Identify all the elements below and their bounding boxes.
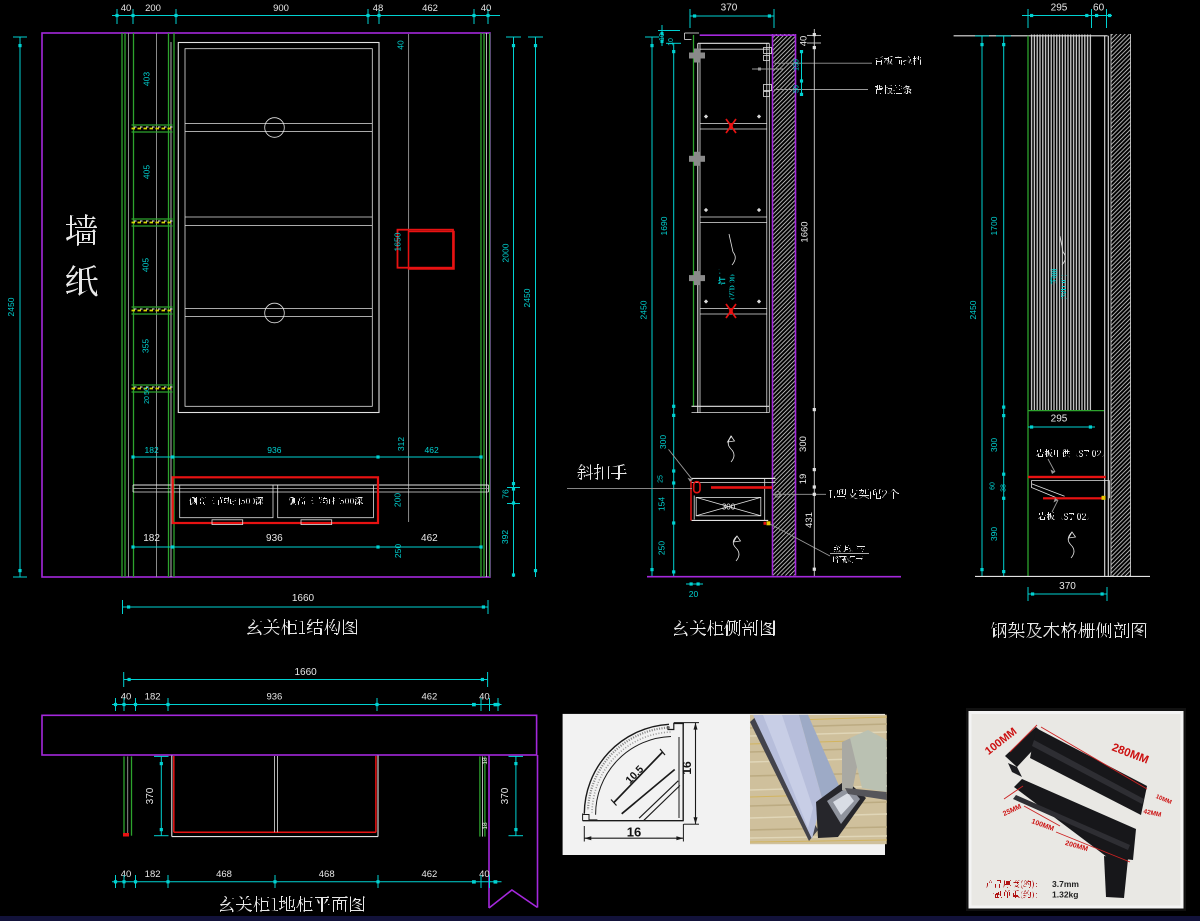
svg-text:370: 370 xyxy=(1059,581,1076,592)
svg-text:936: 936 xyxy=(266,692,282,703)
svg-text:300: 300 xyxy=(722,503,736,512)
svg-text:468: 468 xyxy=(216,869,232,880)
svg-text:370: 370 xyxy=(145,787,156,804)
svg-text:1660: 1660 xyxy=(800,221,811,242)
svg-text:150: 150 xyxy=(794,59,801,71)
svg-text:295: 295 xyxy=(1051,414,1068,425)
svg-text:300: 300 xyxy=(658,435,668,449)
svg-text:370: 370 xyxy=(721,3,738,14)
svg-text:60: 60 xyxy=(990,482,997,490)
svg-text:2450: 2450 xyxy=(639,300,649,319)
svg-text:462: 462 xyxy=(421,533,438,544)
svg-text:462: 462 xyxy=(421,692,437,703)
svg-text:40: 40 xyxy=(121,869,132,880)
svg-text:300: 300 xyxy=(989,438,999,452)
svg-text:48: 48 xyxy=(373,3,384,14)
svg-text:462: 462 xyxy=(421,869,437,880)
svg-text:312: 312 xyxy=(396,437,406,451)
svg-text:50: 50 xyxy=(144,387,151,395)
svg-text:60: 60 xyxy=(1093,3,1105,14)
svg-text:295: 295 xyxy=(1051,3,1068,14)
svg-text:462: 462 xyxy=(422,3,438,14)
svg-text:182: 182 xyxy=(145,445,159,455)
svg-text:2450: 2450 xyxy=(6,297,16,316)
svg-text:3.7mm: 3.7mm xyxy=(1052,879,1079,889)
svg-text:40: 40 xyxy=(481,3,492,14)
svg-text:390: 390 xyxy=(989,527,999,541)
svg-text:200: 200 xyxy=(393,493,403,507)
svg-text:1660: 1660 xyxy=(294,667,317,678)
svg-text:1650: 1650 xyxy=(393,232,403,251)
svg-text:38: 38 xyxy=(1001,484,1008,492)
svg-text:154: 154 xyxy=(657,497,667,511)
svg-text:16: 16 xyxy=(627,825,641,840)
svg-text:182: 182 xyxy=(145,692,161,703)
svg-text:900: 900 xyxy=(273,3,289,14)
svg-text:1660: 1660 xyxy=(292,593,315,604)
svg-text:392: 392 xyxy=(500,530,510,544)
svg-text:200: 200 xyxy=(145,3,161,14)
svg-text:250: 250 xyxy=(393,544,403,558)
svg-text:18: 18 xyxy=(482,822,489,830)
svg-text:1.32kg: 1.32kg xyxy=(1052,890,1078,900)
svg-text:40: 40 xyxy=(799,36,810,47)
svg-text:50: 50 xyxy=(794,85,801,93)
svg-text:1690: 1690 xyxy=(659,216,669,235)
svg-text:355: 355 xyxy=(141,339,151,353)
svg-text:40: 40 xyxy=(121,692,132,703)
svg-text:40: 40 xyxy=(396,40,406,50)
svg-text:250: 250 xyxy=(657,541,667,555)
svg-text:76: 76 xyxy=(501,489,511,499)
svg-text:1700: 1700 xyxy=(989,216,999,235)
svg-text:403: 403 xyxy=(142,72,152,86)
svg-text:936: 936 xyxy=(267,445,281,455)
svg-text:19: 19 xyxy=(798,474,809,485)
svg-text:936: 936 xyxy=(266,533,283,544)
svg-text:462: 462 xyxy=(425,445,439,455)
svg-text:20: 20 xyxy=(689,589,699,599)
svg-text:18: 18 xyxy=(482,757,489,765)
svg-text:431: 431 xyxy=(804,512,815,528)
svg-text:300: 300 xyxy=(798,436,809,452)
svg-text:2450: 2450 xyxy=(522,288,532,307)
svg-text:182: 182 xyxy=(145,869,161,880)
svg-text:25: 25 xyxy=(658,475,665,483)
svg-text:405: 405 xyxy=(142,165,152,179)
svg-text:2450: 2450 xyxy=(968,300,978,319)
svg-text:370: 370 xyxy=(500,787,511,804)
svg-text:20: 20 xyxy=(144,396,151,404)
svg-text:182: 182 xyxy=(143,533,160,544)
svg-text:16: 16 xyxy=(680,761,694,775)
svg-text:2000: 2000 xyxy=(501,243,511,262)
svg-text:40: 40 xyxy=(121,3,132,14)
svg-text:468: 468 xyxy=(319,869,335,880)
svg-text:405: 405 xyxy=(141,258,151,272)
